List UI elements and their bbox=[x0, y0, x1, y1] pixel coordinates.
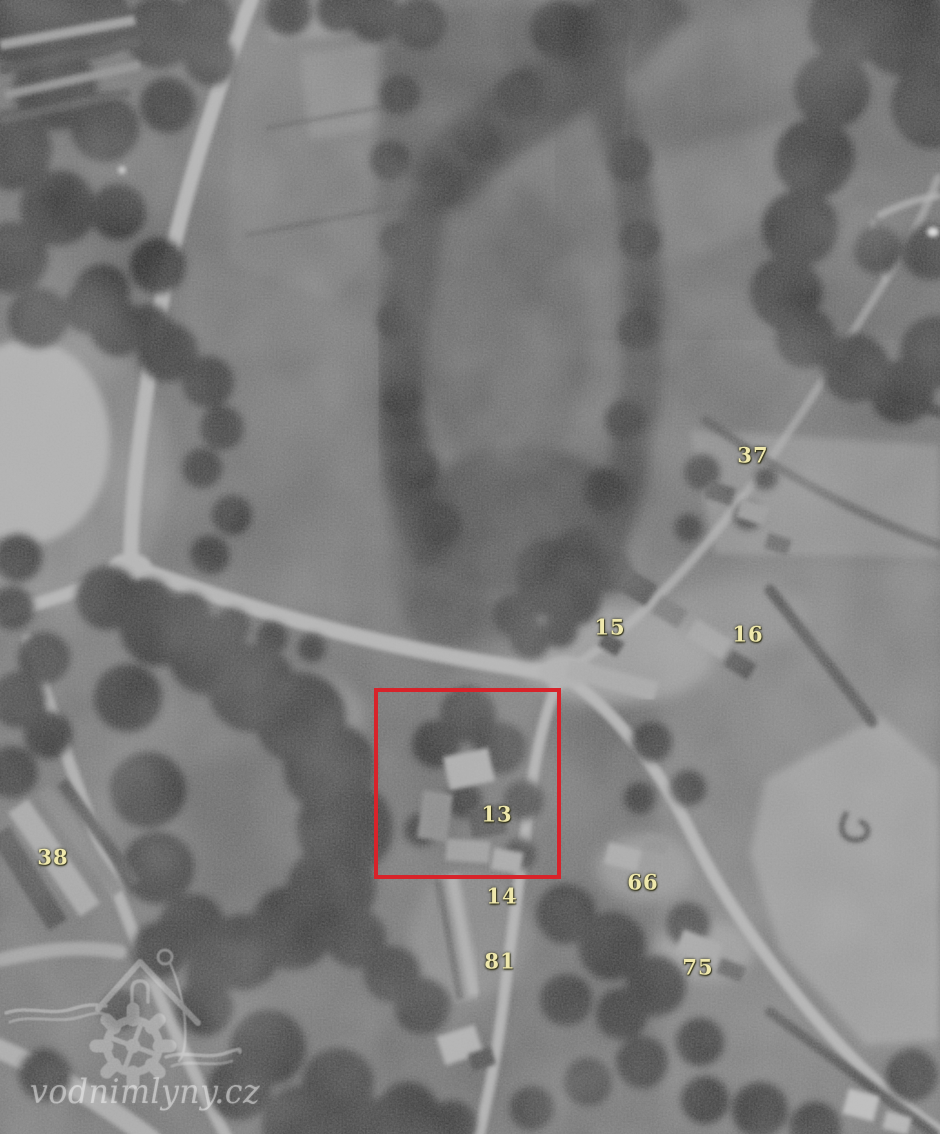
highlight-box bbox=[374, 688, 561, 879]
watermark-text: vodnimlyny.cz bbox=[30, 1072, 244, 1112]
aerial-photograph bbox=[0, 0, 940, 1134]
aerial-photo-viewport: 371516133866148175 vodnimlyny.cz bbox=[0, 0, 940, 1134]
photo-grain bbox=[0, 0, 940, 1134]
